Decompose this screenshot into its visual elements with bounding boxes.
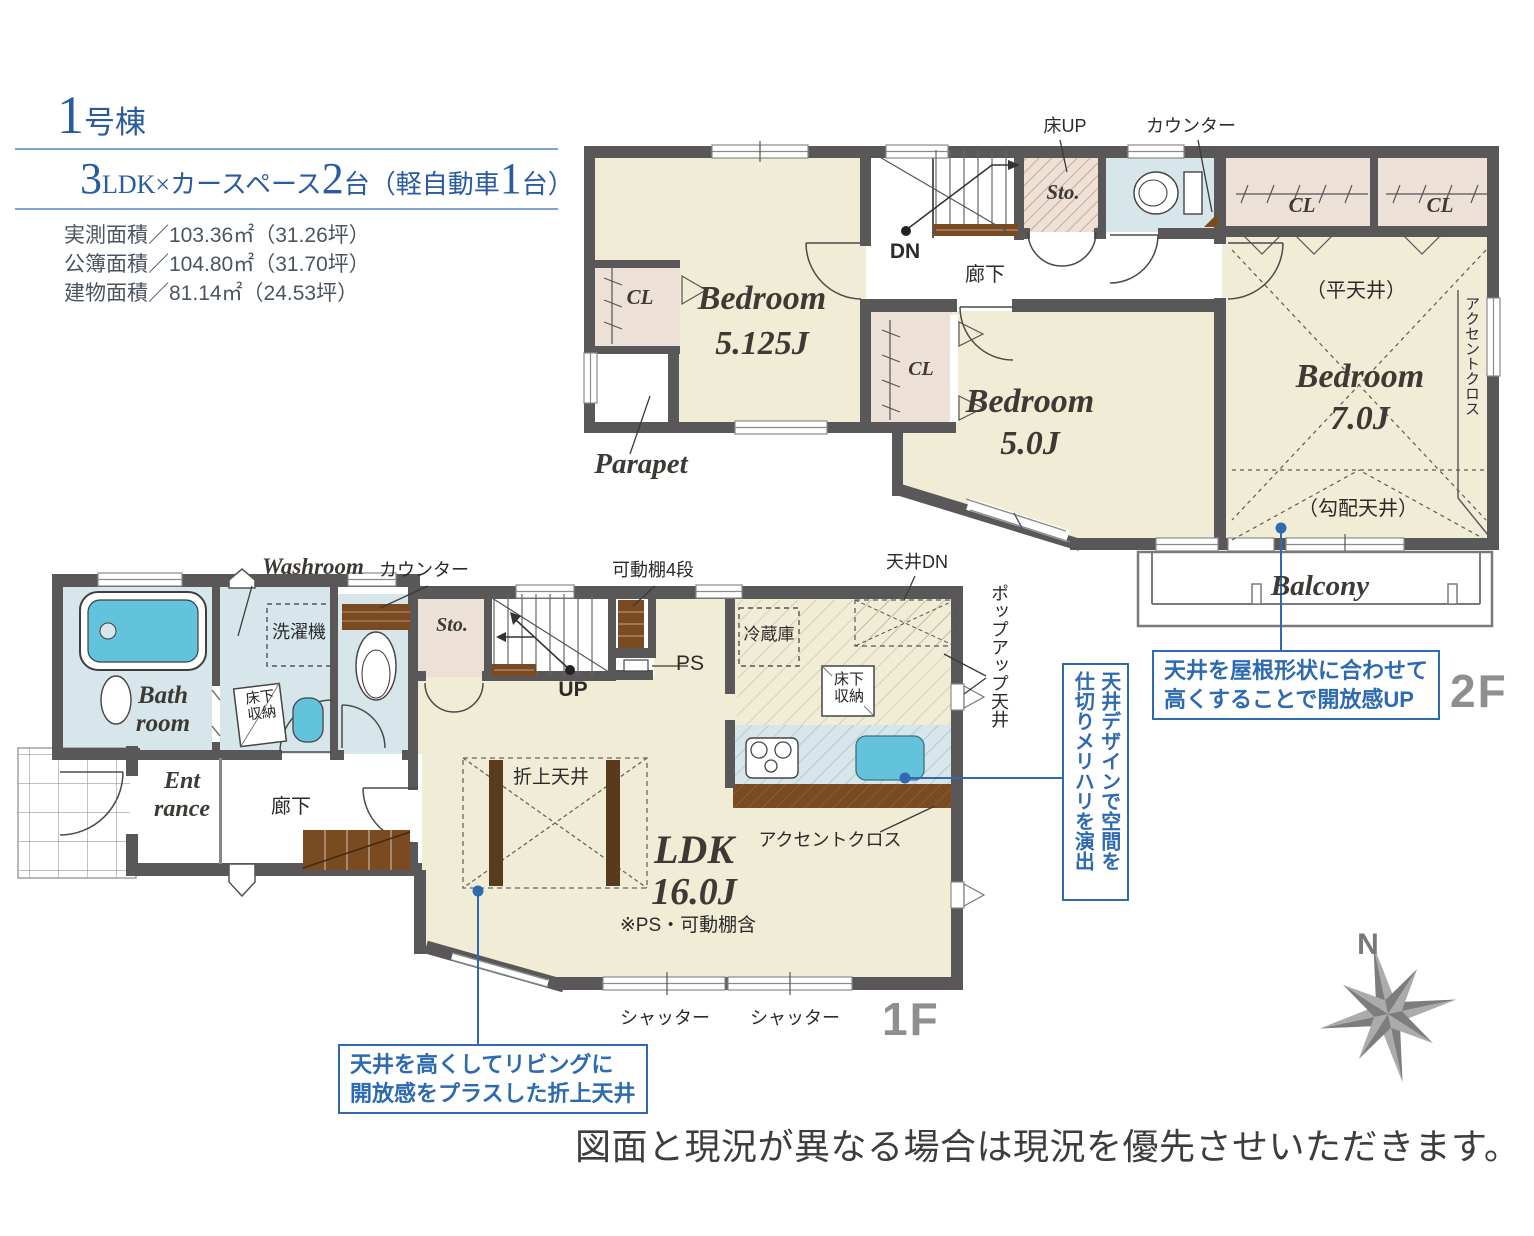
sink xyxy=(856,736,924,780)
accent-cloth-2f-label: アクセントクロス xyxy=(1461,296,1482,416)
ceiling-dn-area xyxy=(855,600,955,646)
entrance-divider xyxy=(219,758,222,864)
callout-bedroom-line1: 天井を屋根形状に合わせて xyxy=(1164,658,1428,683)
floor-up-label: 床UP xyxy=(1043,112,1086,138)
closet-label-2f-mid: CL xyxy=(908,358,934,381)
closet-label-2f-top1: CL xyxy=(1289,193,1316,218)
underfloor-label-washroom: 床下収納 xyxy=(241,688,281,725)
callout-kitchen-line2: 仕切りメリハリを演出 xyxy=(1071,671,1093,871)
compass-rose xyxy=(1305,931,1471,1097)
ldk-size: 16.0J xyxy=(651,870,737,914)
bedroom-50-name: Bedroom xyxy=(966,383,1094,421)
porch-tiles xyxy=(18,748,136,878)
laundry-label: 洗濯機 xyxy=(272,618,326,644)
shutter-label-2: シャッター xyxy=(750,1004,840,1030)
sloped-ceiling-label: （勾配天井） xyxy=(1298,492,1418,521)
bath-stool xyxy=(101,676,131,724)
ldk-name: LDK xyxy=(654,826,734,873)
counter-1f xyxy=(342,604,410,630)
building-suffix: 号棟 xyxy=(84,105,146,140)
counter-2f-label: カウンター xyxy=(1146,112,1236,138)
bedroom-70-size: 7.0J xyxy=(1330,400,1390,438)
ps-box xyxy=(624,660,648,671)
accent-wall-hatch xyxy=(733,784,961,808)
spec-kei-count: 1 xyxy=(500,154,522,203)
disclaimer-text: 図面と現況が異なる場合は現況を優先させいただきます。 xyxy=(575,1118,1520,1170)
compass-north-label: N xyxy=(1357,928,1379,962)
accent-cloth-1f-label: アクセントクロス xyxy=(758,826,901,852)
storage-1f-label: Sto. xyxy=(436,614,468,637)
building-number: 1 xyxy=(57,85,84,145)
spec-car-count: 2 xyxy=(322,154,344,203)
bedroom-5125-name: Bedroom xyxy=(698,280,826,318)
stairs-up-label: UP xyxy=(558,678,587,702)
shelf-label: 可動棚4段 xyxy=(612,556,694,582)
entrance-label-2: rance xyxy=(154,796,210,823)
floor-label-2f: 2F xyxy=(1450,664,1508,718)
coffered-ceiling-label: 折上天井 xyxy=(513,762,589,789)
ceiling-dn-label: 天井DN xyxy=(886,548,948,574)
flat-ceiling-label: （平天井） xyxy=(1306,274,1406,303)
callout-bedroom-line2: 高くすることで開放感UP xyxy=(1164,687,1414,712)
registered-area: 公簿面積／104.80㎡（31.70坪） xyxy=(64,250,370,279)
building-area: 建物面積／81.14㎡（24.53坪） xyxy=(64,279,370,308)
area-figures: 実測面積／103.36㎡（31.26坪） 公簿面積／104.80㎡（31.70坪… xyxy=(64,221,370,308)
ps-label: PS xyxy=(676,652,704,676)
spec-kei-text: 台） xyxy=(522,170,574,199)
measured-area: 実測面積／103.36㎡（31.26坪） xyxy=(64,221,370,250)
ldk-note: ※PS・可動棚含 xyxy=(620,910,756,937)
callout-ldk-line1: 天井を高くしてリビングに xyxy=(350,1052,613,1077)
callout-ldk-ceiling: 天井を高くしてリビングに 開放感をプラスした折上天井 xyxy=(338,1044,648,1114)
washbasin xyxy=(293,698,323,742)
divider-line-bottom xyxy=(15,208,558,210)
parapet-label: Parapet xyxy=(594,448,687,481)
divider-line-top xyxy=(15,148,558,150)
parapet-void xyxy=(592,352,675,428)
callout-bedroom-ceiling: 天井を屋根形状に合わせて 高くすることで開放感UP xyxy=(1152,650,1440,720)
hallway-2f-label: 廊下 xyxy=(965,258,1005,287)
entrance-label-1: Ent xyxy=(164,768,200,795)
bedroom-5125-size: 5.125J xyxy=(715,325,809,363)
fridge-label: 冷蔵庫 xyxy=(744,620,795,645)
stairs-dn-label: DN xyxy=(890,240,920,264)
genkan-step xyxy=(303,830,410,870)
layout-spec: 3LDK×カースペース2台（軽自動車1台） xyxy=(80,153,574,204)
building-title: 1号棟 xyxy=(57,84,146,146)
hallway-1f-label: 廊下 xyxy=(271,790,311,819)
spec-car-text: 台（軽自動車 xyxy=(344,170,500,199)
storage-2f-label: Sto. xyxy=(1046,180,1079,205)
shelf-ps xyxy=(618,600,648,671)
callout-kitchen-ceiling: 天井デザインで空間を 仕切りメリハリを演出 xyxy=(1062,663,1129,901)
bedroom-70-name: Bedroom xyxy=(1296,358,1424,396)
toilet-fixture-1f xyxy=(356,632,396,700)
callout-kitchen-line1: 天井デザインで空間を xyxy=(1098,671,1120,871)
underfloor-label-kitchen: 床下収納 xyxy=(831,672,867,706)
closet-label-2f-left: CL xyxy=(627,285,654,310)
closet-label-2f-top2: CL xyxy=(1427,193,1454,218)
washroom-label: Washroom xyxy=(262,554,364,580)
shutter-label-1: シャッター xyxy=(620,1004,710,1030)
counter-1f-label: カウンター xyxy=(379,556,469,582)
bathroom-label-2: room xyxy=(136,710,190,738)
bedroom-50-size: 5.0J xyxy=(1000,425,1060,463)
spec-ldk-text: LDK×カースペース xyxy=(102,170,322,199)
spec-ldk-count: 3 xyxy=(80,154,102,203)
callout-ldk-line2: 開放感をプラスした折上天井 xyxy=(350,1081,636,1106)
floor-label-1f: 1F xyxy=(882,992,940,1046)
popup-ceiling-label: ポップアップ天井 xyxy=(986,584,1012,728)
balcony-label: Balcony xyxy=(1271,570,1369,603)
bathroom-label-1: Bath xyxy=(138,682,188,710)
closet-gap xyxy=(950,315,958,423)
floorplan-page: 1号棟 3LDK×カースペース2台（軽自動車1台） 実測面積／103.36㎡（3… xyxy=(0,0,1534,1236)
